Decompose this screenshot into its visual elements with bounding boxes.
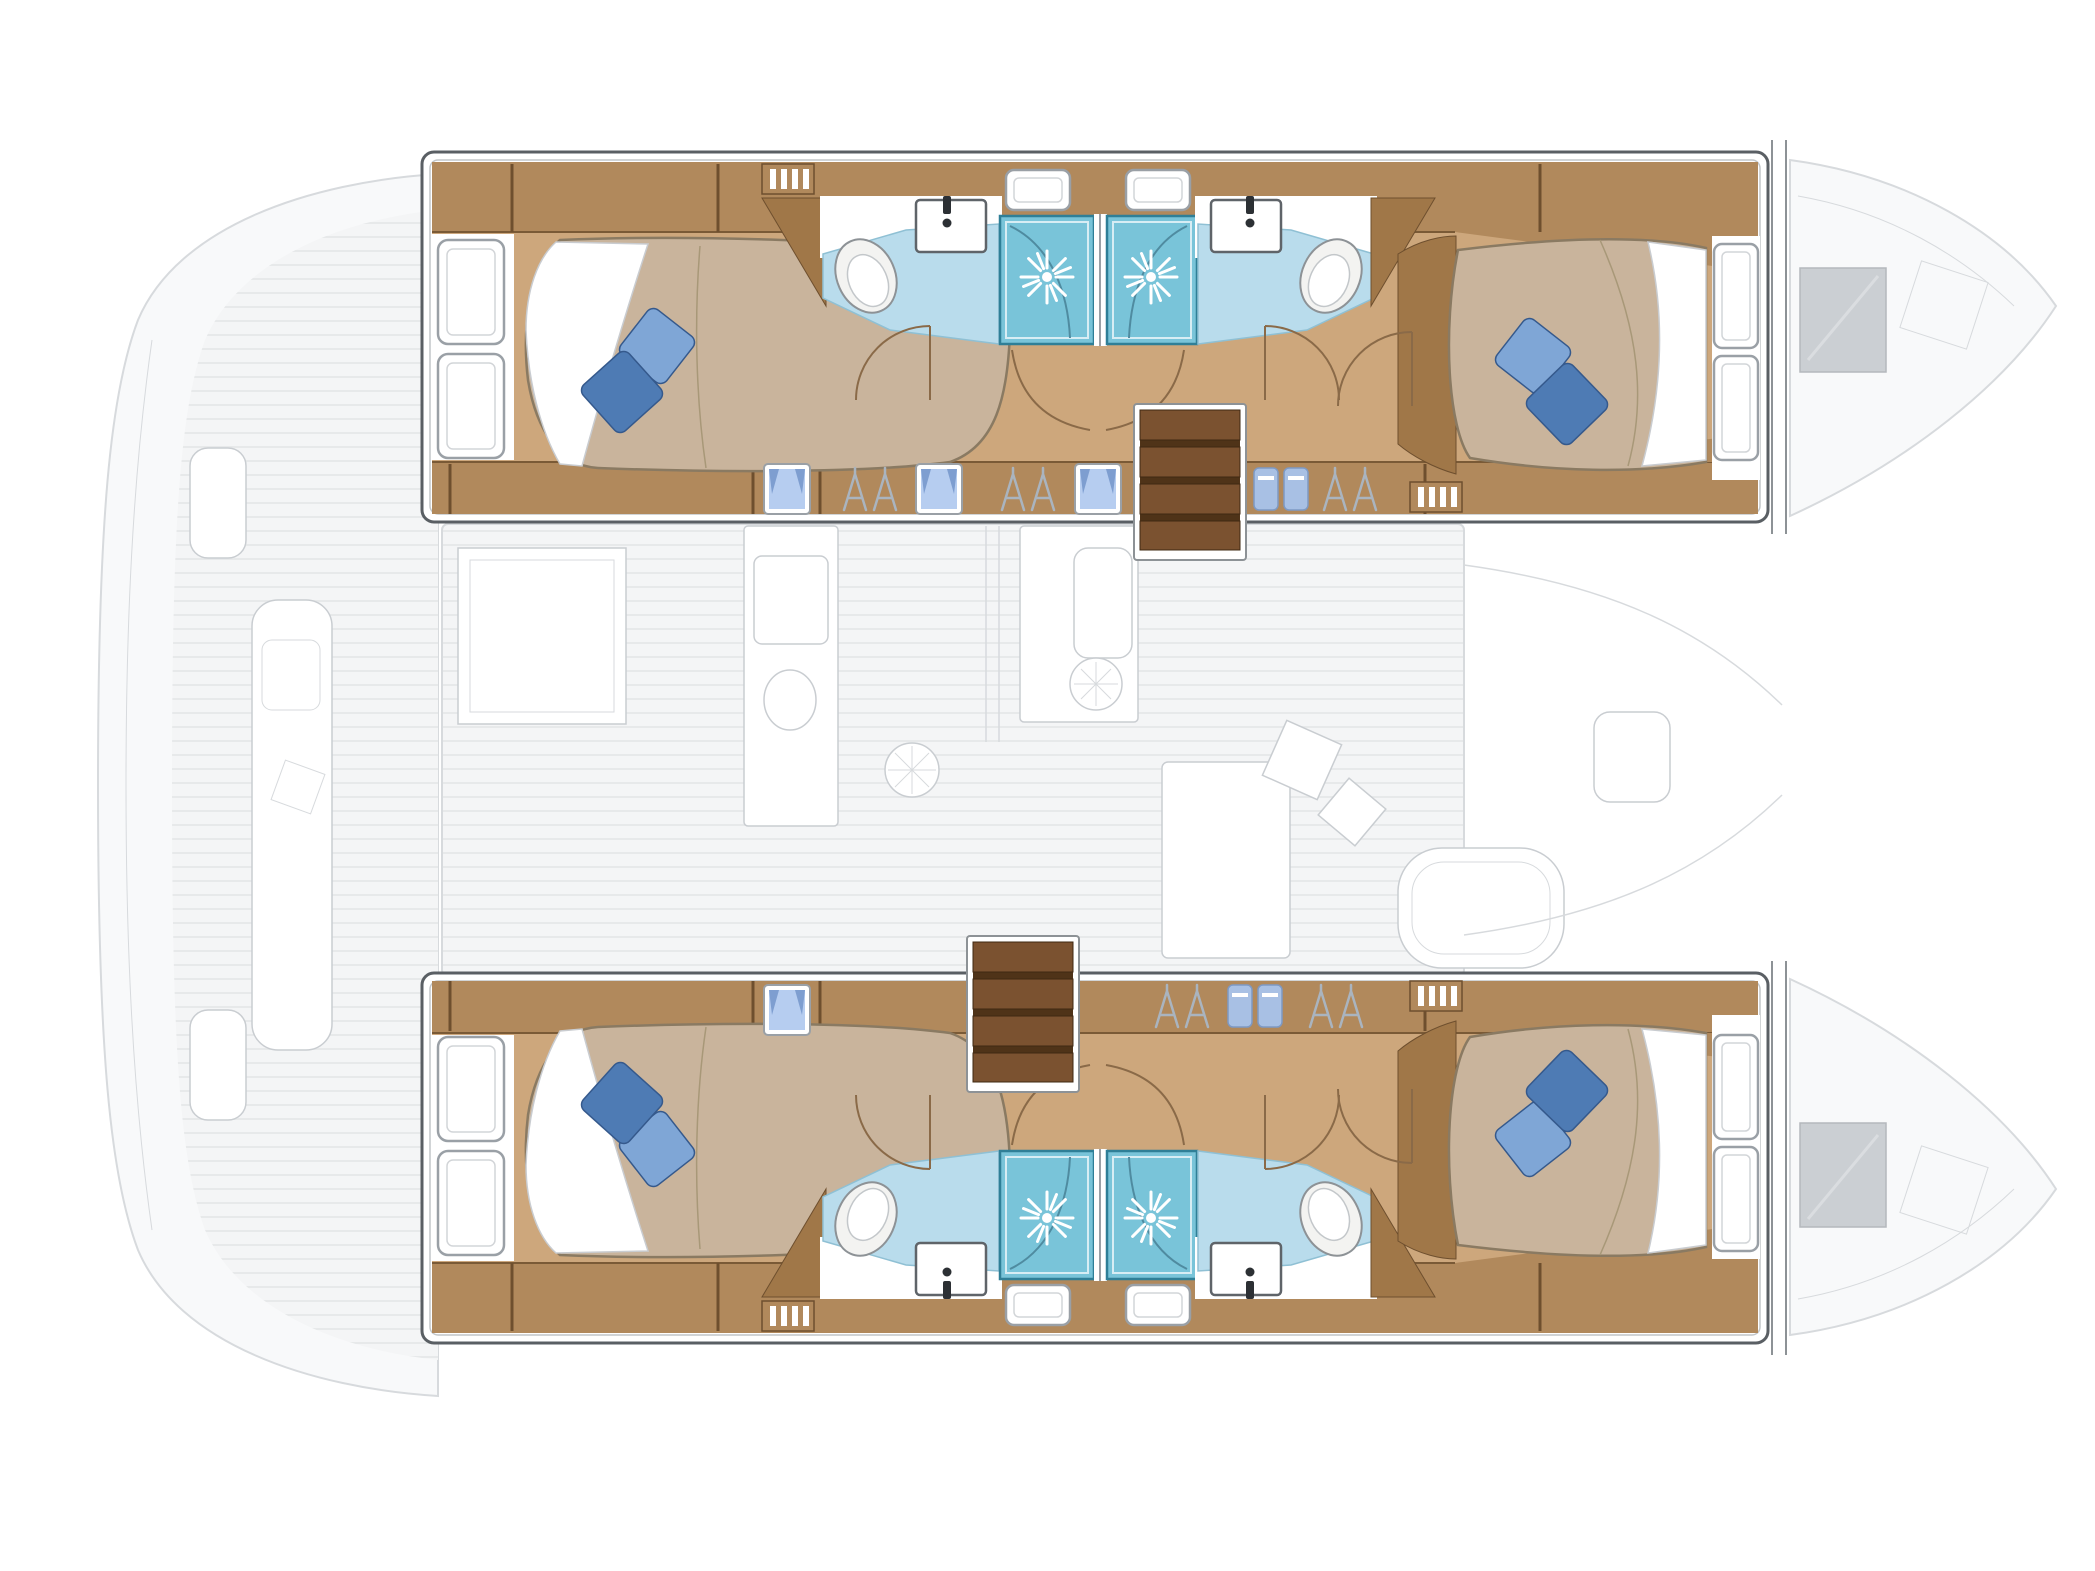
starboard-companionway-stairs: [973, 942, 1073, 1082]
ghost-helm-seat: [190, 1010, 246, 1120]
ghost-helm-seat: [190, 448, 246, 558]
ghost-galley-fridge: [754, 556, 828, 644]
ghost-fridge: [1074, 548, 1132, 658]
ghost-dinette-table: [1162, 762, 1290, 958]
floor-plan-page: [0, 0, 2095, 1571]
floor-plan-canvas: [0, 0, 2095, 1571]
ghost-curved-sofa: [1398, 848, 1564, 968]
ghost-chart-table: [458, 548, 626, 724]
port-companionway-stairs: [1140, 410, 1240, 550]
ghost-galley-sink: [764, 670, 816, 730]
ghost-stove-burner: [1070, 658, 1122, 710]
ghost-stove-burner: [885, 743, 939, 797]
starboard-hull: [422, 973, 1768, 1343]
ghost-forward-seat: [1594, 712, 1670, 802]
